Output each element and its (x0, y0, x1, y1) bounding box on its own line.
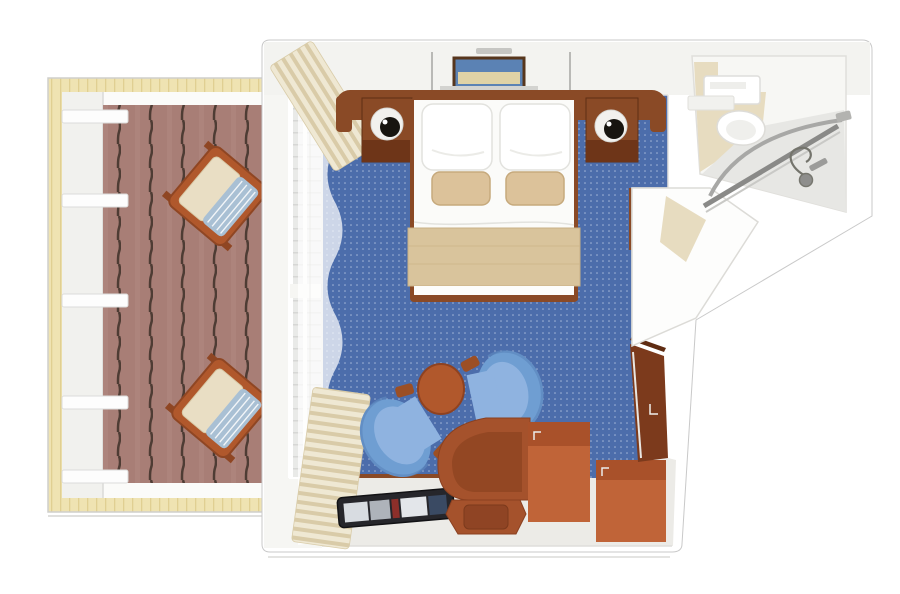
bed-runner-blanket (408, 228, 580, 286)
round-side-table (418, 364, 464, 414)
magazine (343, 501, 369, 522)
railing-post (62, 470, 128, 483)
lamp-shade-center (604, 119, 624, 139)
railing-post (62, 396, 128, 409)
footboard (412, 295, 578, 301)
reading-light-wire (569, 52, 571, 96)
art-bracket (476, 48, 512, 54)
headboard-end (336, 96, 352, 132)
railing-post (62, 194, 128, 207)
drawer-unit-left (528, 422, 590, 522)
stool (446, 500, 526, 534)
stool-top (464, 505, 508, 529)
magazine (400, 496, 428, 517)
magazine (369, 500, 391, 521)
double-bed (408, 98, 580, 302)
lamp-highlight (607, 122, 612, 127)
accent-pillow (506, 172, 564, 205)
railing-post (62, 294, 128, 307)
balcony (48, 78, 278, 516)
drawer-top (528, 422, 590, 446)
lamp-highlight (383, 120, 388, 125)
cabin (262, 40, 872, 557)
nightstand-left (362, 98, 412, 162)
nightstand-front (586, 140, 638, 162)
reading-light-wire (431, 52, 433, 96)
sink-basin (710, 82, 746, 89)
railing-post (62, 110, 128, 123)
window-frame (288, 78, 293, 478)
floorplan-page (0, 0, 900, 594)
pillow (500, 104, 570, 170)
drawer-unit-right (596, 460, 666, 542)
shower-head (800, 174, 813, 187)
bathroom (688, 56, 852, 212)
sheet-edge (414, 286, 574, 295)
magazine (428, 495, 448, 515)
nightstand-right (586, 98, 638, 162)
nightstand-front (362, 140, 412, 162)
picture-sand (458, 72, 520, 84)
floorplan-canvas (0, 0, 900, 594)
accent-pillow (432, 172, 490, 205)
lamp-shade-center (380, 117, 400, 137)
vanity-shelf (688, 96, 734, 110)
pillow (422, 104, 492, 170)
headboard-end (650, 96, 666, 132)
drawer-top (596, 460, 666, 480)
